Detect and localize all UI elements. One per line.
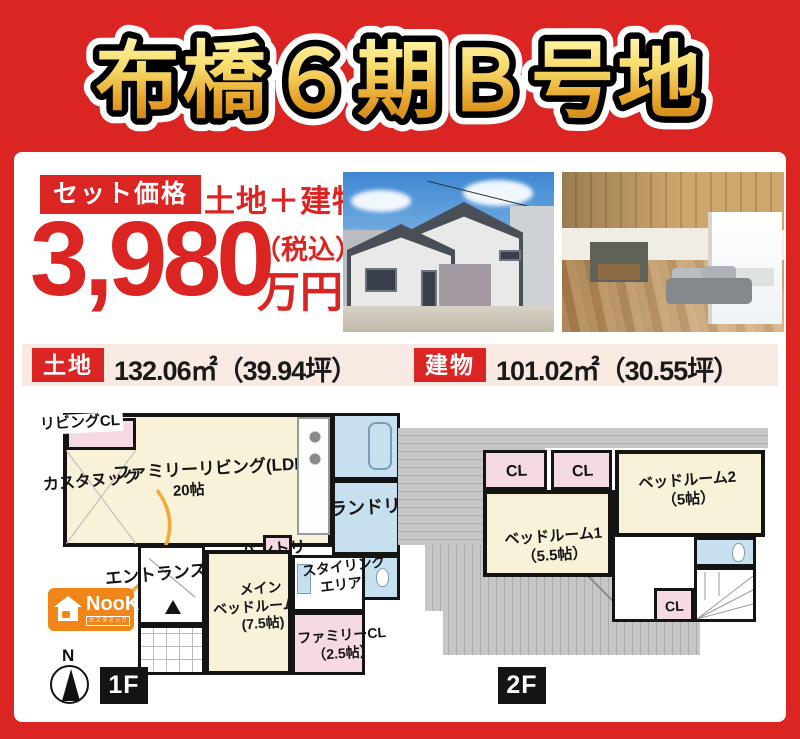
room-closet-c: CL	[654, 588, 694, 622]
room-toilet-2f	[694, 537, 756, 567]
room-bedroom2: ベッドルーム2 （5帖）	[615, 450, 765, 537]
nook-logo: NooK カスタヌック	[48, 588, 134, 631]
building-value: 101.02㎡（30.55坪）	[496, 349, 739, 388]
land-value: 132.06㎡（39.94坪）	[114, 349, 357, 388]
gravel-ground	[343, 306, 554, 332]
compass-north-label: N	[62, 646, 74, 666]
label-cl-a: CL	[505, 461, 527, 482]
room-closet-a: CL	[483, 450, 547, 490]
area-spec-bar: 土地 132.06㎡（39.94坪） 建物 101.02㎡（30.55坪）	[22, 344, 778, 386]
toilet-fixture-2f	[732, 543, 745, 562]
cloud-shape	[351, 190, 411, 212]
bathtub	[368, 422, 392, 470]
dining-table	[598, 264, 640, 280]
room-bedroom1: ベッドルーム1 （5.5帖）	[483, 490, 612, 577]
logo-house-roof-icon	[54, 596, 82, 607]
flyer-canvas: 布橋６期Ｂ号地 布橋６期Ｂ号地 布橋６期Ｂ号地 セット価格 土地＋建物 3,98…	[0, 0, 800, 739]
sofa	[666, 278, 752, 304]
label-cl-b: CL	[571, 461, 593, 482]
room-family-closet: ファミリーCL （2.5帖）	[292, 612, 365, 675]
label-main-bedroom: メイン ベッドルーム (7.5帖)	[225, 578, 298, 635]
exterior-photo	[343, 172, 554, 332]
floor-plan-2f: CL CL ベッドルーム2 （5帖） ベッドルーム1 （5.5帖）	[398, 415, 770, 705]
label-family-cl: ファミリーCL （2.5帖）	[297, 624, 388, 665]
room-closet-b: CL	[551, 450, 612, 490]
kitchen-counter-plan	[297, 417, 330, 535]
label-cl-c: CL	[665, 598, 685, 616]
floor-badge-2f: 2F	[498, 667, 546, 704]
room-main-bedroom: メイン ベッドルーム (7.5帖)	[205, 550, 292, 675]
entrance-arrow	[165, 600, 181, 614]
label-bedroom2: ベッドルーム2 （5帖）	[638, 469, 738, 513]
land-badge: 土地	[32, 348, 104, 382]
label-bedroom1: ベッドルーム1 （5.5帖）	[504, 525, 604, 569]
compass-icon	[50, 665, 89, 704]
floor-plan-1f: リビングCL カスタヌック ファミリーリビング(LDK) 20帖 ランドリー パ…	[35, 408, 407, 708]
price-unit: 万円	[257, 258, 343, 320]
content-panel: セット価格 土地＋建物 3,980 （税込） 万円	[14, 152, 786, 722]
floor-badge-1f: 1F	[100, 667, 148, 704]
stair-fan-lines	[697, 570, 753, 619]
logo-sub-text: カスタヌック	[86, 616, 130, 626]
roof-notch	[425, 611, 443, 655]
entrance-tiles	[138, 625, 205, 675]
house-window	[499, 250, 521, 261]
price-amount: 3,980	[30, 204, 270, 315]
house-window	[421, 270, 437, 308]
room-bathroom	[332, 413, 400, 480]
house-window	[365, 268, 397, 292]
logo-brand-text: NooK	[86, 593, 139, 616]
page-title-banner: 布橋６期Ｂ号地 布橋６期Ｂ号地 布橋６期Ｂ号地	[0, 6, 800, 148]
building-badge: 建物	[414, 348, 486, 382]
label-ldk-size: 20帖	[173, 481, 206, 501]
page-title: 布橋６期Ｂ号地	[95, 34, 704, 128]
compass-needle	[62, 669, 80, 701]
interior-photo	[562, 172, 784, 332]
stairs-2f	[694, 567, 756, 622]
logo-house-door-icon	[62, 611, 70, 618]
